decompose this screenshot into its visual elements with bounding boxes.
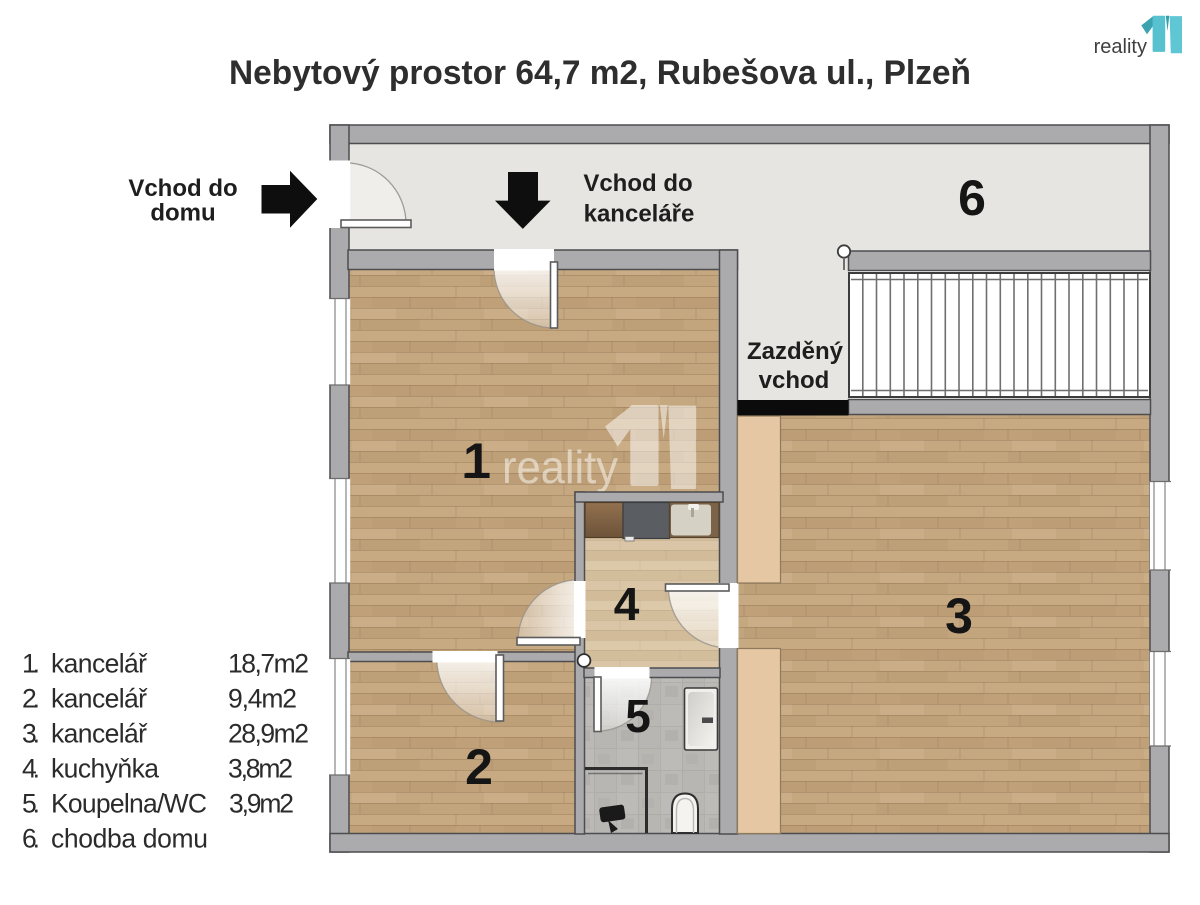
svg-text:reality: reality [502,441,618,493]
svg-text:18,7m2: 18,7m2 [228,649,309,679]
svg-text:9,4m2: 9,4m2 [228,684,297,714]
svg-text:28,9m2: 28,9m2 [228,719,309,749]
svg-text:6: 6 [958,170,986,226]
svg-text:2: 2 [465,739,493,795]
svg-text:2.: 2. [22,684,40,714]
svg-text:Koupelna/WC: Koupelna/WC [51,789,207,819]
svg-text:1.: 1. [22,649,40,679]
svg-text:kanceláře: kanceláře [584,201,695,228]
svg-text:1: 1 [463,433,491,489]
svg-text:3: 3 [945,588,973,644]
svg-text:domu: domu [150,200,215,227]
svg-text:5: 5 [625,690,651,742]
svg-text:chodba domu: chodba domu [51,824,208,854]
svg-text:reality: reality [1094,36,1147,58]
svg-text:kuchyňka: kuchyňka [51,754,159,784]
svg-text:Zazděný: Zazděný [747,338,844,365]
svg-text:Vchod do: Vchod do [583,170,692,197]
svg-text:6.: 6. [22,824,40,854]
svg-text:kancelář: kancelář [51,649,148,679]
svg-text:kancelář: kancelář [51,684,148,714]
svg-text:Vchod do: Vchod do [128,175,237,202]
svg-text:3.: 3. [22,719,40,749]
svg-text:4: 4 [614,578,640,630]
svg-text:3,8m2: 3,8m2 [228,754,293,784]
svg-text:kancelář: kancelář [51,719,148,749]
svg-text:vchod: vchod [759,367,830,394]
svg-text:Nebytový prostor 64,7 m2, Rube: Nebytový prostor 64,7 m2, Rubešova ul., … [229,54,971,92]
svg-text:4.: 4. [22,754,40,784]
svg-text:3,9m2: 3,9m2 [229,789,294,819]
svg-text:5.: 5. [22,789,40,819]
